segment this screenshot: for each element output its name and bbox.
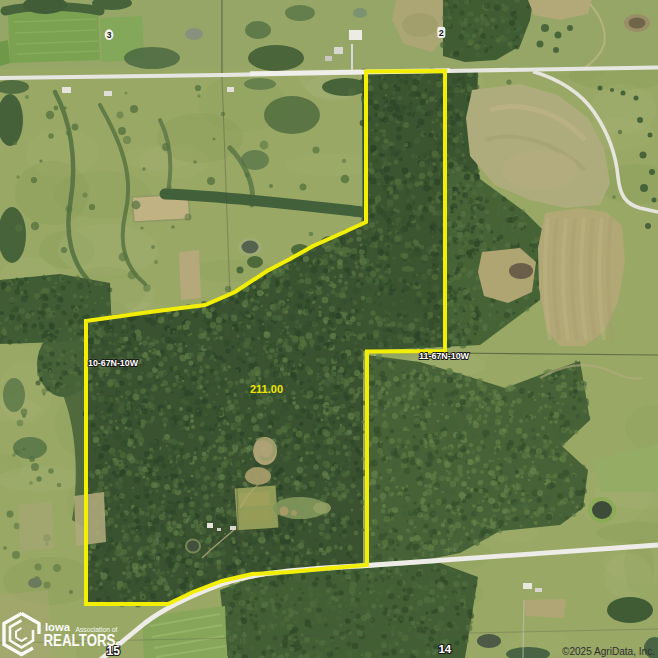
svg-text:211.00: 211.00 xyxy=(250,383,283,395)
svg-text:10-67N-10W: 10-67N-10W xyxy=(88,357,138,368)
svg-text:11-67N-10W: 11-67N-10W xyxy=(419,350,469,361)
svg-text:2: 2 xyxy=(439,28,444,38)
svg-text:©2025 AgriData, Inc.: ©2025 AgriData, Inc. xyxy=(562,645,655,657)
svg-text:14: 14 xyxy=(438,643,451,655)
svg-text:REALTORS: REALTORS xyxy=(44,632,116,649)
svg-text:3: 3 xyxy=(107,30,112,40)
